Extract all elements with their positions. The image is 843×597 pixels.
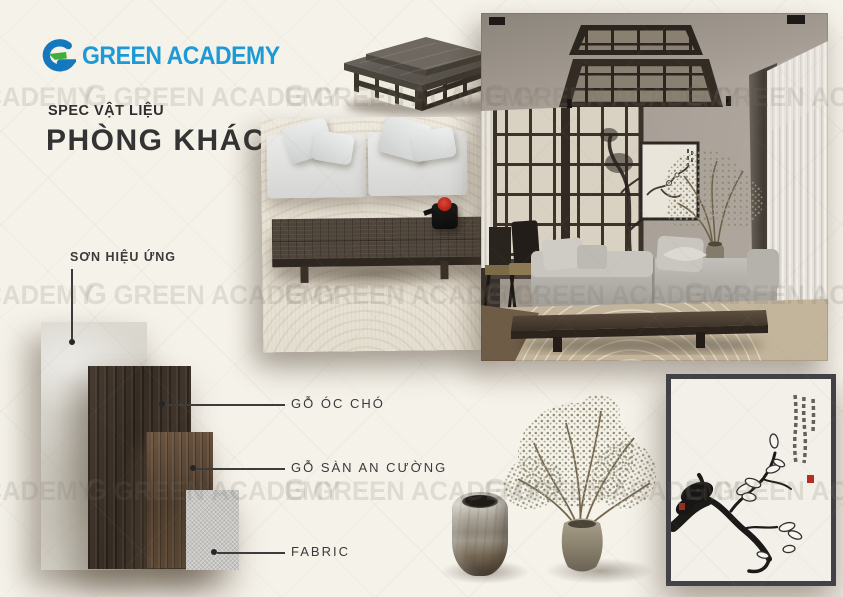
watermark-g-icon: G: [84, 276, 107, 311]
watermark-g-icon: G: [284, 78, 307, 113]
ink-painting-photo: [666, 374, 836, 586]
dried-plant-illustration: [498, 383, 658, 578]
logo-g-icon: [38, 39, 76, 73]
material-label-fabric: FABRIC: [291, 544, 350, 559]
dried-plant-photo: [498, 383, 658, 578]
watermark-text: GGREEN ACADEMY: [0, 276, 95, 312]
material-label-go-oc-cho: GỖ ÓC CHÓ: [291, 396, 385, 411]
leader-line-fabric: [217, 552, 285, 554]
leader-dot-son-hieu-ung: [69, 339, 75, 345]
watermark-label: GREEN ACADEMY: [0, 280, 95, 310]
leader-dot-go-oc-cho: [159, 401, 165, 407]
green-academy-logo-icon: [38, 39, 76, 73]
bench-leg: [300, 267, 308, 283]
bench-leg: [440, 261, 448, 279]
vase-mouth: [462, 495, 498, 508]
sofa-pillow: [311, 129, 355, 165]
living-room-illustration: [481, 13, 828, 361]
leader-line-go-san-an-cuong: [196, 468, 285, 470]
material-label-go-san-an-cuong: GỖ SÀN AN CƯỜNG: [291, 460, 447, 475]
watermark-g-icon: G: [284, 472, 307, 507]
spec-board: GREEN ACADEMY SPEC VẬT LIỆU PHÒNG KHÁCH …: [0, 0, 843, 597]
ink-painting-illustration: [671, 379, 831, 581]
leader-line-go-oc-cho: [165, 404, 285, 406]
sofa-top-view-photo: [261, 117, 490, 353]
teapot-red-lid: [438, 197, 452, 211]
leader-dot-fabric: [211, 549, 217, 555]
leader-line-son-hieu-ung: [71, 269, 73, 341]
logo-wordmark: GREEN ACADEMY: [82, 42, 280, 71]
material-label-son-hieu-ung: SƠN HIỆU ỨNG: [70, 250, 176, 264]
leader-dot-go-san-an-cuong: [190, 465, 196, 471]
living-room-photo: [481, 13, 828, 361]
bench-seam: [272, 238, 488, 242]
page-title: PHÒNG KHÁCH: [46, 124, 289, 158]
swatch-fabric: [186, 490, 239, 570]
spec-kicker: SPEC VẬT LIỆU: [48, 103, 164, 119]
sofa-pillow: [411, 126, 457, 162]
